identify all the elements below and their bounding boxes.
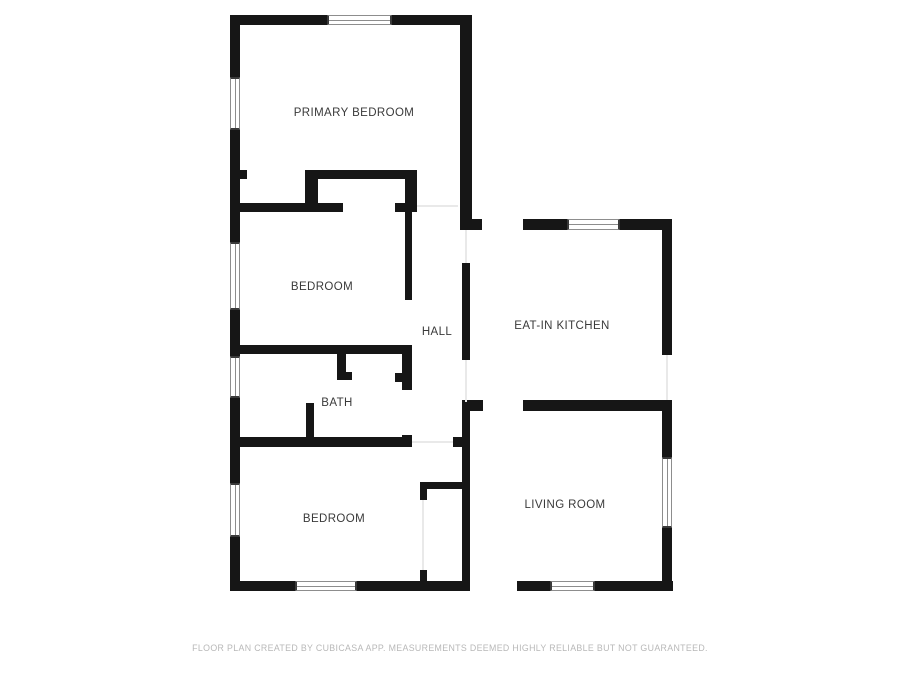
window-pane-divider	[667, 459, 668, 526]
room-label-primary-bedroom: PRIMARY BEDROOM	[294, 107, 415, 119]
window-glyph	[230, 77, 240, 130]
window-glyph	[662, 457, 672, 528]
window-pane-divider	[235, 358, 236, 396]
wall-segment	[460, 15, 472, 228]
window-glyph	[550, 581, 595, 591]
wall-segment	[453, 437, 463, 447]
window-glyph	[295, 581, 357, 591]
room-label-bath: BATH	[321, 397, 352, 409]
wall-segment	[306, 403, 314, 437]
window-glyph	[230, 242, 240, 310]
room-label-bedroom-lower: BEDROOM	[303, 513, 365, 525]
window-pane-divider	[235, 79, 236, 128]
room-label-living-room: LIVING ROOM	[524, 499, 605, 511]
wall-segment	[305, 170, 318, 212]
door-threshold-line	[412, 441, 453, 443]
wall-segment	[420, 482, 463, 489]
wall-segment	[462, 263, 470, 360]
door-opening	[405, 300, 412, 345]
door-threshold-line	[417, 205, 458, 207]
wall-segment	[395, 373, 402, 382]
wall-segment	[420, 570, 427, 581]
wall-segment	[462, 402, 470, 581]
wall-segment	[662, 219, 672, 355]
window-glyph	[327, 15, 392, 25]
door-opening	[483, 400, 523, 411]
door-threshold-line	[666, 355, 668, 400]
door-opening	[343, 203, 395, 212]
floor-plan: FLOOR PLAN CREATED BY CUBICASA APP. MEAS…	[0, 0, 900, 675]
window-pane-divider	[235, 244, 236, 308]
window-glyph	[230, 356, 240, 398]
door-threshold-line	[465, 230, 467, 263]
wall-segment	[337, 372, 352, 380]
window-pane-divider	[235, 485, 236, 535]
window-glyph	[230, 483, 240, 537]
door-opening	[482, 219, 523, 230]
window-pane-divider	[569, 224, 618, 225]
door-opening	[247, 170, 305, 179]
door-threshold-line	[422, 500, 424, 570]
wall-segment	[230, 345, 412, 354]
door-opening	[470, 581, 517, 591]
room-label-bedroom-middle: BEDROOM	[291, 281, 353, 293]
floor-plan-disclaimer: FLOOR PLAN CREATED BY CUBICASA APP. MEAS…	[192, 643, 708, 653]
window-pane-divider	[297, 586, 355, 587]
window-pane-divider	[329, 20, 390, 21]
room-label-hall: HALL	[422, 326, 452, 338]
wall-segment	[230, 437, 412, 447]
door-opening	[402, 390, 412, 435]
room-label-eat-in-kitchen: EAT-IN KITCHEN	[514, 320, 609, 332]
window-glyph	[567, 219, 620, 230]
door-threshold-line	[465, 360, 467, 402]
wall-segment	[405, 170, 417, 212]
window-pane-divider	[552, 586, 593, 587]
